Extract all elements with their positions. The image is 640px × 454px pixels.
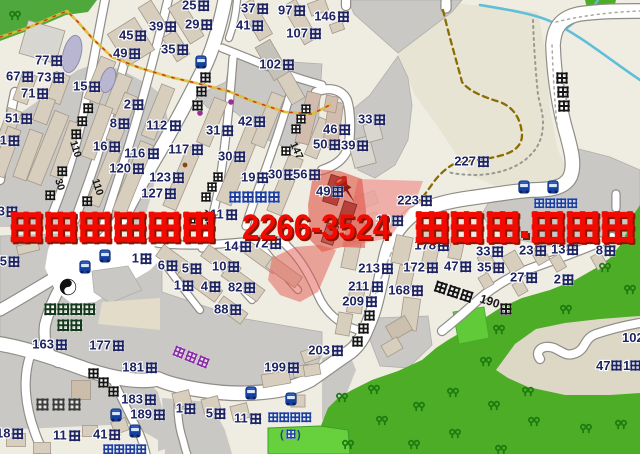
svg-text:23: 23 xyxy=(519,243,533,258)
svg-text:168: 168 xyxy=(388,283,410,298)
svg-text:39: 39 xyxy=(149,19,163,34)
svg-text:123: 123 xyxy=(149,170,171,185)
svg-text:33: 33 xyxy=(476,244,490,259)
svg-text:127: 127 xyxy=(141,186,163,201)
svg-text:56: 56 xyxy=(293,167,307,182)
svg-text:16: 16 xyxy=(93,139,107,154)
svg-text:30: 30 xyxy=(268,167,282,182)
svg-text:35: 35 xyxy=(477,260,491,275)
svg-text:3: 3 xyxy=(0,204,5,219)
svg-text:120: 120 xyxy=(109,161,131,176)
svg-text:1: 1 xyxy=(132,251,139,266)
svg-text:30: 30 xyxy=(218,149,232,164)
svg-text:172: 172 xyxy=(403,260,425,275)
svg-text:14: 14 xyxy=(224,239,239,254)
svg-text:227: 227 xyxy=(454,154,476,169)
svg-text:199: 199 xyxy=(264,360,286,375)
svg-text:102: 102 xyxy=(259,57,281,72)
svg-text:181: 181 xyxy=(122,360,144,375)
svg-text:71: 71 xyxy=(21,86,35,101)
svg-text:2: 2 xyxy=(124,97,131,112)
svg-text:117: 117 xyxy=(168,142,189,157)
svg-text:10: 10 xyxy=(212,259,226,274)
svg-text:51: 51 xyxy=(5,111,19,126)
svg-text:37: 37 xyxy=(241,1,255,16)
svg-text:163: 163 xyxy=(32,337,54,352)
svg-text:41: 41 xyxy=(93,427,107,442)
svg-text:213: 213 xyxy=(358,261,380,276)
svg-text:77: 77 xyxy=(35,53,49,68)
svg-text:33: 33 xyxy=(358,112,372,127)
svg-text:2266-3524: 2266-3524 xyxy=(242,208,390,247)
svg-text:112: 112 xyxy=(146,118,167,133)
svg-text:41: 41 xyxy=(236,18,250,33)
svg-text:189: 189 xyxy=(130,407,152,422)
svg-text:1: 1 xyxy=(174,278,181,293)
svg-text:209: 209 xyxy=(342,294,364,309)
svg-text:5: 5 xyxy=(0,254,7,269)
svg-text:50: 50 xyxy=(313,137,327,152)
svg-text:146: 146 xyxy=(314,9,336,24)
svg-text:211: 211 xyxy=(348,279,369,294)
svg-text:107: 107 xyxy=(286,26,308,41)
svg-text:29: 29 xyxy=(185,17,199,32)
svg-text:82: 82 xyxy=(228,280,242,295)
svg-text:39: 39 xyxy=(341,138,355,153)
svg-text:35: 35 xyxy=(161,42,175,57)
svg-text:46: 46 xyxy=(323,122,337,137)
svg-text:42: 42 xyxy=(238,114,252,129)
svg-text:19: 19 xyxy=(241,170,255,185)
svg-text:11: 11 xyxy=(53,428,67,443)
svg-text:): ) xyxy=(297,429,301,441)
svg-text:49: 49 xyxy=(113,46,127,61)
svg-text:223: 223 xyxy=(397,193,419,208)
svg-text:1: 1 xyxy=(0,133,7,148)
svg-text:27: 27 xyxy=(510,270,524,285)
svg-text:15: 15 xyxy=(73,79,87,94)
svg-text:5: 5 xyxy=(182,261,189,276)
svg-text:47: 47 xyxy=(596,358,610,373)
svg-text:11: 11 xyxy=(234,411,248,426)
svg-text:203: 203 xyxy=(308,343,330,358)
svg-text:67: 67 xyxy=(6,69,20,84)
svg-text:73: 73 xyxy=(37,70,51,85)
svg-text:31: 31 xyxy=(206,123,220,138)
svg-text:1: 1 xyxy=(176,401,183,416)
svg-text:5: 5 xyxy=(206,406,213,421)
svg-text:6: 6 xyxy=(158,258,165,273)
svg-text:97: 97 xyxy=(278,3,292,18)
svg-text:47: 47 xyxy=(444,259,458,274)
svg-text:102: 102 xyxy=(622,330,640,345)
svg-text:88: 88 xyxy=(214,302,228,317)
svg-text:177: 177 xyxy=(89,338,111,353)
svg-text:183: 183 xyxy=(121,392,143,407)
svg-text:25: 25 xyxy=(182,0,196,13)
svg-text:(: ( xyxy=(280,429,284,441)
svg-text:8: 8 xyxy=(110,116,117,131)
svg-text:116: 116 xyxy=(124,146,145,161)
svg-text:49: 49 xyxy=(316,184,330,199)
svg-text:18: 18 xyxy=(0,426,11,441)
svg-text:45: 45 xyxy=(119,28,133,43)
svg-text:1: 1 xyxy=(623,358,630,373)
svg-text:2: 2 xyxy=(554,272,561,287)
svg-text:8: 8 xyxy=(596,243,603,258)
svg-text:4: 4 xyxy=(201,279,209,294)
